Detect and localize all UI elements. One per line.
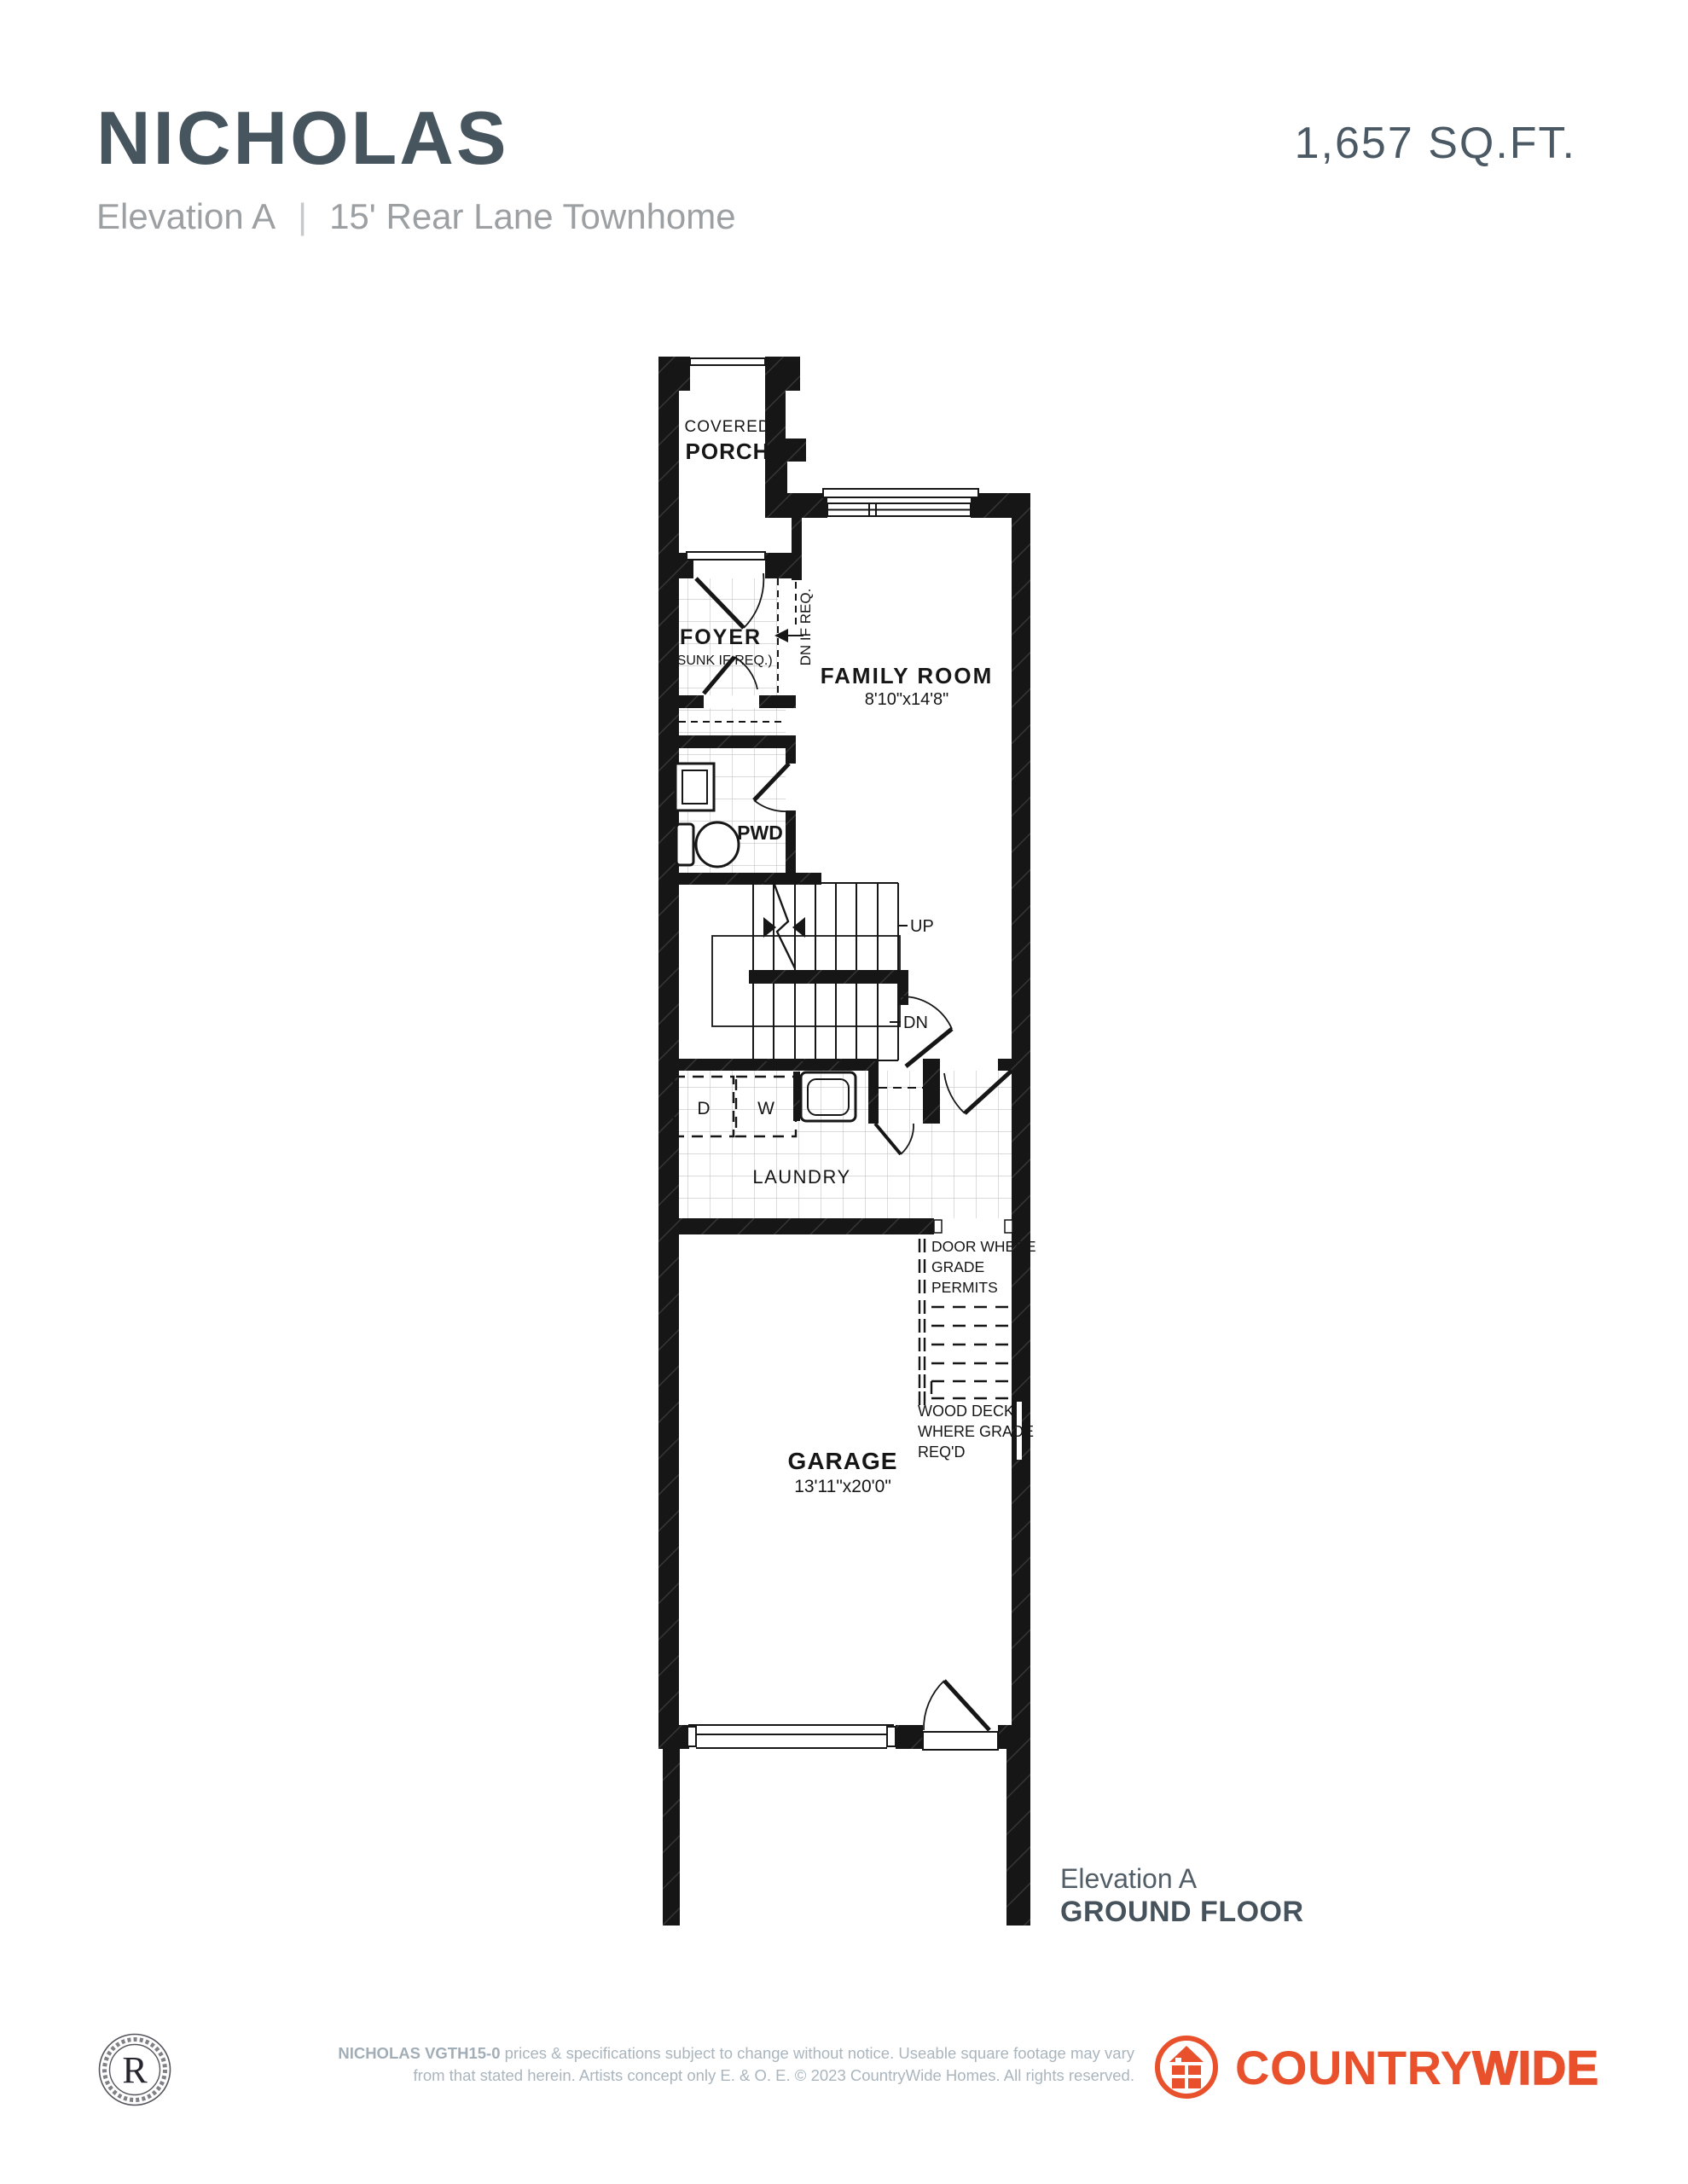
page-title: NICHOLAS: [96, 92, 736, 184]
deck-tick-marks: [919, 1239, 925, 1405]
page: NICHOLAS Elevation A | 15' Rear Lane Tow…: [0, 0, 1688, 2184]
caption-floor: GROUND FLOOR: [1060, 1897, 1304, 1926]
disclaimer-model-code: NICHOLAS VGTH15-0: [338, 2044, 500, 2062]
page-subtitle: Elevation A | 15' Rear Lane Townhome: [96, 196, 736, 237]
disclaimer: NICHOLAS VGTH15-0 prices & specification…: [281, 2042, 1134, 2087]
garage-door: [689, 1725, 893, 1734]
disclaimer-line2: from that stated herein. Artists concept…: [414, 2066, 1134, 2084]
label-foyer-note: (SUNK IF REQ.): [672, 653, 772, 668]
label-family-room-dims: 8'10"x14'8": [865, 690, 949, 709]
brand-wordmark: COUNTRYWIDE: [1235, 2040, 1599, 2095]
man-door-sill: [923, 1732, 998, 1750]
label-porch: PORCH: [686, 439, 770, 464]
toilet-bowl: [696, 822, 739, 867]
family-room-window: [823, 489, 978, 516]
floor-plan: COVERED PORCH FOYER (SUNK IF REQ.) DN IF…: [653, 346, 1036, 1932]
brand-part-wide: WIDE: [1472, 2041, 1598, 2094]
label-wood-deck-2: WHERE GRADE: [918, 1423, 1034, 1440]
subtitle-product: 15' Rear Lane Townhome: [329, 196, 736, 237]
label-up: UP: [910, 917, 934, 936]
label-laundry: LAUNDRY: [752, 1166, 850, 1188]
label-washer: W: [757, 1099, 774, 1118]
label-wood-deck-3: REQ'D: [918, 1443, 965, 1461]
caption-elevation: Elevation A: [1060, 1865, 1304, 1892]
label-covered: COVERED: [685, 418, 771, 436]
label-garage-dims: 13'11"x20'0": [794, 1477, 891, 1496]
square-footage: 1,657 SQ.FT.: [1295, 118, 1576, 169]
plan-caption: Elevation A GROUND FLOOR: [1060, 1865, 1304, 1926]
label-garage: GARAGE: [788, 1448, 898, 1474]
label-pwd: PWD: [737, 822, 783, 844]
toilet-tank: [676, 824, 693, 865]
label-dryer: D: [697, 1099, 710, 1118]
brand-logo: COUNTRYWIDE: [1153, 2034, 1599, 2100]
countrywide-house-icon: [1153, 2034, 1220, 2100]
label-wood-deck-1: WOOD DECK: [918, 1403, 1014, 1420]
label-dn: DN: [903, 1014, 928, 1032]
label-door-grade-3: PERMITS: [931, 1279, 998, 1296]
garage-doors: [687, 1725, 998, 1750]
label-door-grade-1: DOOR WHERE: [931, 1238, 1036, 1255]
label-door-grade-2: GRADE: [931, 1258, 984, 1275]
subtitle-elevation: Elevation A: [96, 196, 276, 237]
seal-letter: R: [122, 2049, 148, 2091]
label-family-room: FAMILY ROOM: [821, 663, 994, 688]
registered-seal: R: [97, 2032, 172, 2107]
label-foyer: FOYER: [680, 625, 762, 649]
subtitle-separator: |: [298, 196, 307, 237]
stair-break-line: [774, 885, 795, 968]
label-dn-if-req: DN IF REQ.: [798, 589, 814, 666]
stair-treads-lower: [753, 984, 898, 1060]
disclaimer-line1: prices & specifications subject to chang…: [501, 2044, 1135, 2062]
brand-part-country: COUNTRY: [1235, 2041, 1472, 2094]
header: NICHOLAS Elevation A | 15' Rear Lane Tow…: [96, 92, 736, 237]
